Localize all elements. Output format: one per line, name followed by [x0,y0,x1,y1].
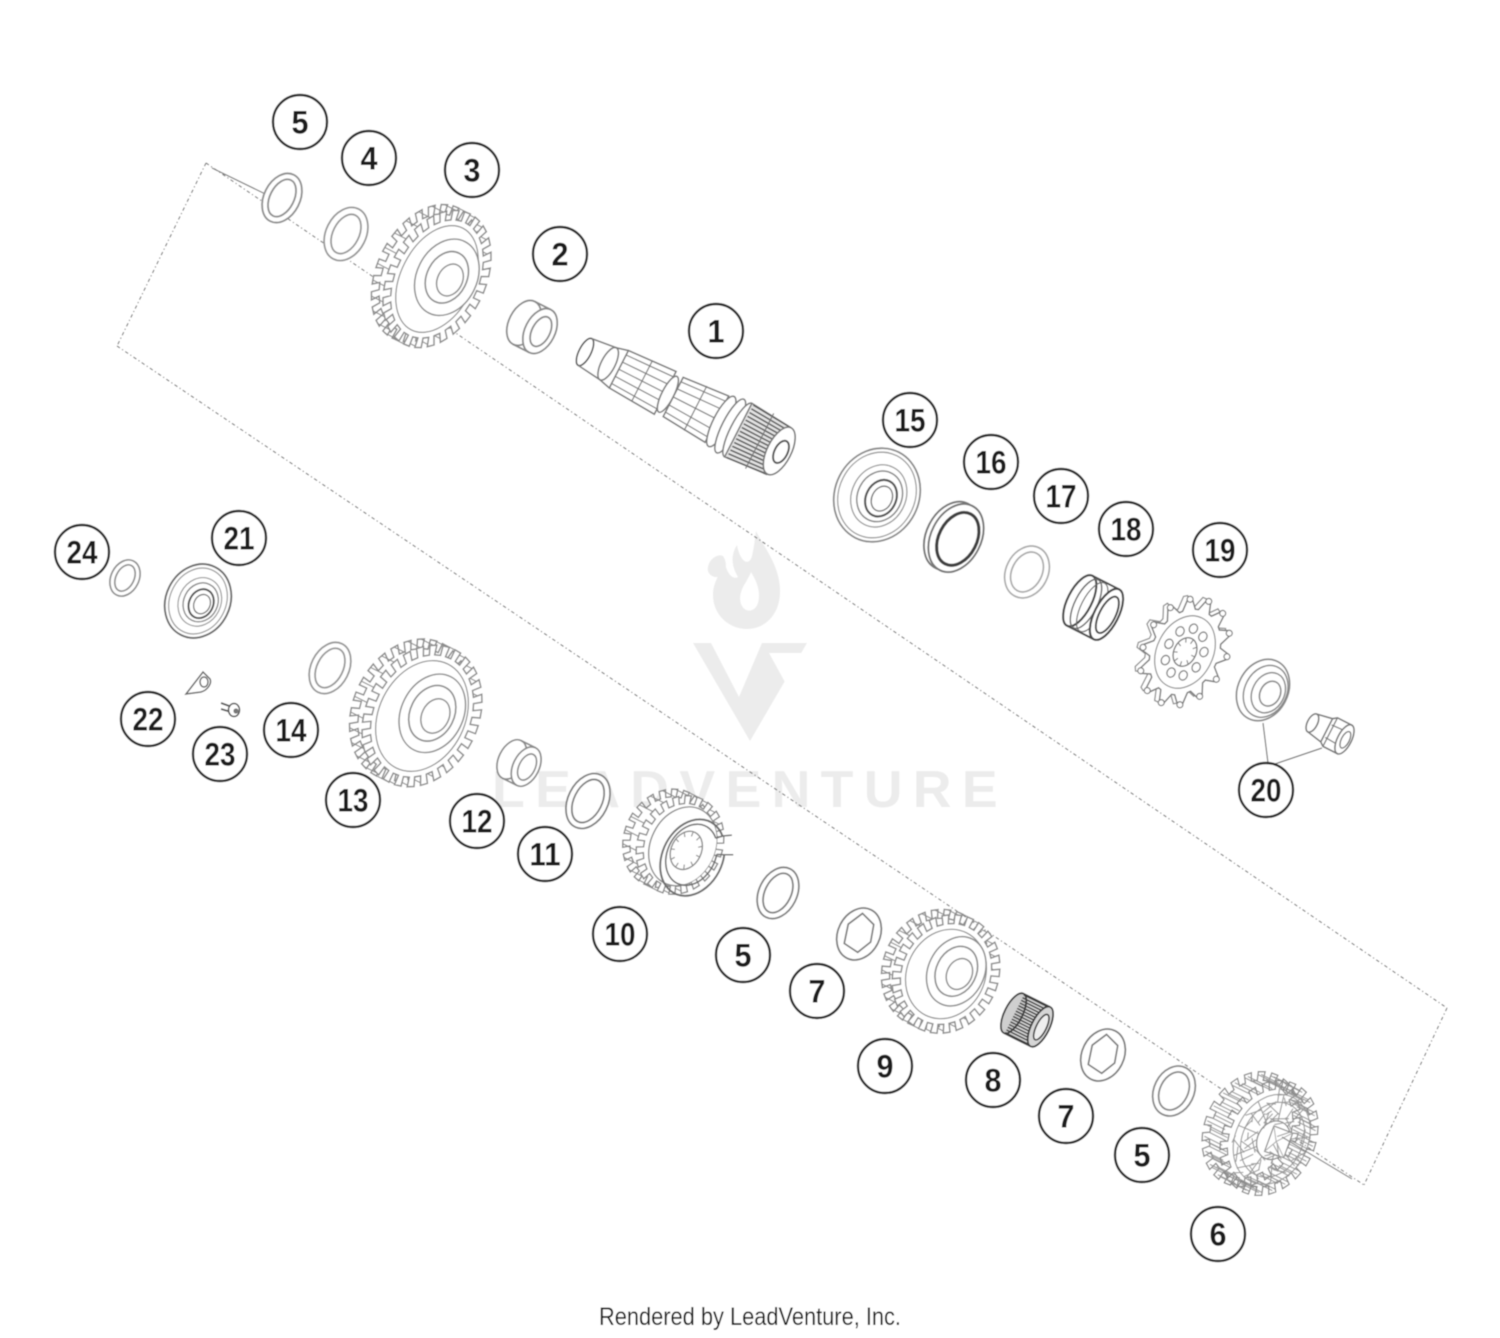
svg-text:24: 24 [67,535,98,571]
svg-text:1: 1 [708,314,725,350]
svg-text:10: 10 [605,917,636,953]
svg-text:3: 3 [464,153,481,189]
svg-text:22: 22 [133,702,164,738]
svg-text:17: 17 [1046,479,1077,515]
svg-text:Rendered by LeadVenture, Inc.: Rendered by LeadVenture, Inc. [599,1303,901,1331]
svg-text:8: 8 [985,1063,1002,1099]
svg-text:15: 15 [895,403,926,439]
svg-text:13: 13 [338,783,369,819]
svg-text:4: 4 [361,141,378,177]
svg-text:5: 5 [735,938,752,974]
svg-text:7: 7 [809,974,826,1010]
svg-text:20: 20 [1251,773,1282,809]
svg-text:18: 18 [1111,512,1142,548]
svg-text:21: 21 [224,521,255,557]
svg-text:9: 9 [877,1049,894,1085]
svg-text:12: 12 [462,804,493,840]
svg-text:14: 14 [276,713,307,749]
svg-text:7: 7 [1058,1099,1075,1135]
svg-text:5: 5 [292,105,309,141]
svg-text:19: 19 [1205,533,1236,569]
svg-text:5: 5 [1134,1138,1151,1174]
svg-text:11: 11 [530,837,561,873]
svg-text:6: 6 [1210,1217,1227,1253]
svg-text:23: 23 [205,737,236,773]
svg-text:16: 16 [976,445,1007,481]
svg-text:2: 2 [552,237,569,273]
